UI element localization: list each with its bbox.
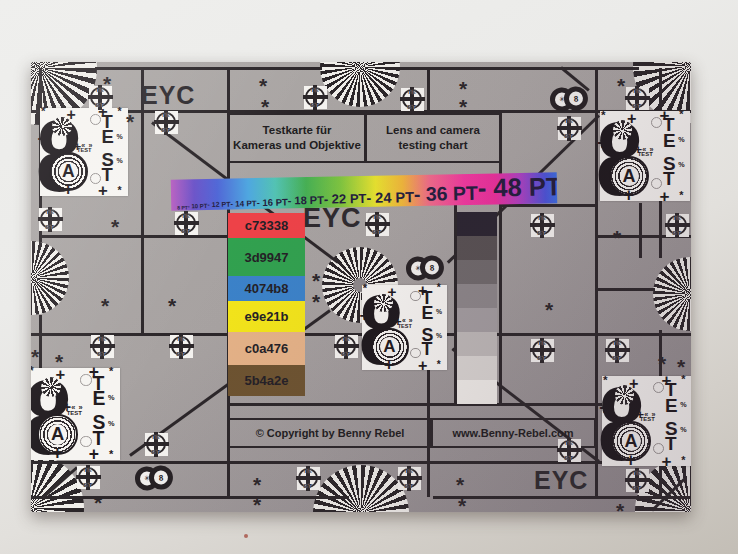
crosshair-letters-top: TE: [155, 112, 178, 118]
grayscale-step: [457, 212, 497, 236]
grid-line-horizontal: [40, 235, 228, 238]
color-swatch-5b4a2e: 5b4a2e: [228, 365, 305, 396]
patch-glyph: E: [663, 132, 676, 151]
crosshair-marker: TEST: [335, 335, 358, 358]
double-eight-marker: ✳8: [549, 86, 589, 114]
crosshair-letters-top: TE: [666, 215, 689, 221]
patch-glyph: «: [81, 142, 85, 149]
patch-glyph: +: [629, 375, 638, 391]
crosshair-letters-top: TE: [145, 434, 168, 440]
crosshair-letters-bottom: ST: [398, 483, 421, 489]
patch-glyph: %: [117, 133, 123, 140]
crosshair-letters-bottom: ST: [366, 229, 389, 235]
crosshair-marker: TEST: [175, 212, 198, 235]
color-swatch-hex-label: c73338: [245, 218, 288, 233]
pt-size-label: - 14 PT: [230, 199, 256, 210]
patch-glyph: E: [102, 128, 114, 146]
grid-line-horizontal: [596, 288, 655, 291]
patch-glyph: +: [89, 446, 99, 463]
double-eight-marker: ✳8: [134, 465, 174, 493]
crosshair-marker: TEST: [91, 335, 114, 358]
crosshair-letters-top: TE: [304, 87, 327, 93]
patch-glyph: %: [117, 157, 123, 164]
crosshair-letters-top: TE: [626, 470, 649, 476]
patch-glyph: %: [436, 333, 442, 340]
crosshair-letters-bottom: ST: [606, 355, 629, 361]
crosshair-marker: TEST: [626, 469, 649, 492]
crosshair-letters-bottom: ST: [626, 485, 649, 491]
crosshair-marker: TEST: [170, 335, 193, 358]
patch-glyph: »: [409, 318, 413, 325]
patch-glyph: E: [92, 389, 105, 408]
patch-glyph: +: [623, 186, 634, 204]
crosshair-letters-bottom: ST: [145, 449, 168, 455]
crosshair-letters-top: TE: [531, 340, 554, 346]
crosshair-marker: TEST: [558, 117, 581, 140]
patch-glyph: +: [66, 107, 75, 123]
crosshair-marker: TEST: [366, 213, 389, 236]
pt-size-label: - 48 PT: [477, 172, 557, 205]
patch-glyph: %: [108, 394, 115, 401]
crosshair-letters-top: TE: [77, 467, 100, 473]
siemens-star-fan: [31, 241, 69, 315]
grayscale-step: [457, 380, 497, 404]
crosshair-letters-top: TE: [170, 336, 193, 342]
crosshair-marker: TEST: [531, 339, 554, 362]
patch-glyph: +: [388, 284, 397, 299]
patch-glyph: %: [108, 420, 115, 427]
test-patch-8: 8A*++*++*%%*TEST+TEST+«»: [31, 368, 120, 460]
patch-glyph: +: [627, 110, 636, 126]
patch-a-letter: A: [620, 166, 639, 186]
patch-glyph: +: [63, 181, 73, 199]
crosshair-letters-top: TE: [531, 215, 554, 221]
copyright-text: © Copyright by Benny Rebel: [230, 420, 430, 446]
crosshair-marker: TEST: [558, 439, 581, 462]
patch-glyph: «: [402, 318, 406, 325]
patch-glyph: %: [678, 136, 684, 143]
test-patch-8: 8A*++*++*%%*TEST+TEST+«»: [600, 111, 690, 201]
patch-glyph: %: [680, 401, 686, 408]
crosshair-letters-top: TE: [366, 214, 389, 220]
color-swatch-e9e21b: e9e21b: [228, 301, 305, 332]
double-eight-right-circle: 8: [419, 255, 445, 281]
crosshair-letters-top: TE: [401, 89, 424, 95]
test-chart-card: Testkarte für Kameras und Objektive Lens…: [31, 62, 691, 512]
patch-glyph: +: [661, 453, 671, 470]
crosshair-letters-bottom: ST: [77, 482, 100, 488]
crosshair-letters-bottom: ST: [626, 103, 649, 109]
test-patch-8: 8A*++*++*%%*TEST+TEST+«»: [40, 108, 128, 196]
patch-glyph: *: [363, 283, 367, 294]
grayscale-step: [457, 260, 497, 284]
patch-glyph: «: [644, 411, 648, 418]
grid-line-horizontal: [398, 67, 639, 70]
grayscale-step: [457, 284, 497, 308]
color-swatch-c0a476: c0a476: [228, 332, 305, 365]
crosshair-letters-top: TE: [335, 336, 358, 342]
patch-glyph: *: [41, 106, 45, 117]
grayscale-step: [457, 356, 497, 380]
color-swatch-3d9947: 3d9947: [228, 238, 305, 276]
eyc-label-top-left: EYC: [141, 83, 195, 108]
crosshair-letters-top: TE: [175, 213, 198, 219]
patch-glyph: +: [625, 451, 636, 469]
patch-glyph: «: [642, 146, 646, 153]
crosshair-marker: TEST: [145, 433, 168, 456]
title-english-line2: testing chart: [398, 138, 467, 153]
crosshair-marker: TEST: [155, 111, 178, 134]
patch-a-letter: A: [622, 431, 641, 451]
eyc-label-bottom-right: EYC: [534, 468, 588, 493]
patch-glyph: *: [679, 109, 683, 120]
patch-glyph: *: [364, 311, 368, 320]
siemens-star-fan: [653, 257, 691, 331]
patch-glyph: »: [79, 404, 83, 411]
double-eight-right-circle: 8: [563, 86, 589, 112]
crosshair-letters-bottom: ST: [558, 133, 581, 139]
crosshair-letters-bottom: ST: [175, 228, 198, 234]
patch-glyph: *: [109, 366, 113, 377]
patch-glyph: +: [98, 183, 108, 200]
grid-line-horizontal: [31, 496, 349, 499]
grid-line-horizontal: [433, 496, 691, 499]
patch-glyph: »: [652, 411, 656, 418]
crosshair-letters-bottom: ST: [335, 351, 358, 357]
crosshair-letters-bottom: ST: [39, 224, 62, 230]
test-patch-8: 8A*++*++*%%*TEST+TEST+«»: [362, 285, 447, 370]
crosshair-letters-top: TE: [558, 118, 581, 124]
crosshair-letters-bottom: ST: [401, 104, 424, 110]
crosshair-marker: TEST: [304, 86, 327, 109]
crosshair-letters-top: TE: [297, 468, 320, 474]
grayscale-step: [457, 332, 497, 356]
crosshair-marker: TEST: [39, 208, 62, 231]
pt-size-label: - 10 PT: [188, 203, 208, 211]
patch-glyph: *: [117, 106, 121, 117]
grid-line-horizontal: [31, 461, 691, 464]
patch-glyph: %: [678, 161, 684, 168]
crosshair-letters-top: TE: [39, 209, 62, 215]
crosshair-marker: TEST: [531, 214, 554, 237]
crosshair-marker: TEST: [401, 88, 424, 111]
grid-line-horizontal: [95, 67, 322, 70]
copyright-box: © Copyright by Benny Rebel www.Benny-Reb…: [228, 418, 596, 448]
patch-glyph: *: [681, 455, 685, 466]
crosshair-letters-top: TE: [626, 88, 649, 94]
patch-glyph: «: [71, 404, 75, 411]
title-german: Testkarte für Kameras und Objektive: [228, 113, 366, 163]
color-swatch-hex-label: 4074b8: [244, 281, 288, 296]
patch-glyph: +: [418, 357, 427, 373]
crosshair-letters-bottom: ST: [304, 102, 327, 108]
crosshair-letters-top: TE: [398, 468, 421, 474]
crosshair-marker: TEST: [606, 339, 629, 362]
patch-glyph: *: [603, 374, 608, 386]
crosshair-letters-bottom: ST: [155, 127, 178, 133]
color-swatch-hex-label: 5b4a2e: [244, 373, 288, 388]
color-swatch-hex-label: 3d9947: [244, 250, 288, 265]
double-eight-right-circle: 8: [148, 465, 174, 491]
crosshair-letters-top: TE: [606, 340, 629, 346]
title-german-line2: Kameras und Objektive: [233, 138, 361, 153]
crosshair-letters-bottom: ST: [297, 483, 320, 489]
crosshair-letters-top: TE: [91, 336, 114, 342]
crosshair-letters-bottom: ST: [558, 455, 581, 461]
patch-glyph: *: [31, 396, 34, 406]
patch-glyph: %: [436, 309, 442, 316]
crosshair-letters-bottom: ST: [666, 230, 689, 236]
color-swatch-hex-label: e9e21b: [244, 309, 288, 324]
eyc-label-center: EYC: [303, 205, 362, 232]
grayscale-step: [457, 236, 497, 260]
patch-glyph: *: [117, 185, 121, 196]
patch-a-letter: A: [380, 337, 398, 356]
patch-glyph: *: [679, 190, 683, 201]
crosshair-marker: TEST: [666, 214, 689, 237]
patch-glyph: *: [437, 283, 441, 293]
photo-background: Testkarte für Kameras und Objektive Lens…: [0, 0, 738, 554]
color-swatch-c73338: c73338: [228, 213, 305, 238]
crosshair-letters-bottom: ST: [89, 102, 112, 108]
siemens-star-fan: [313, 465, 409, 512]
color-swatch-hex-label: c0a476: [245, 341, 288, 356]
grayscale-step: [457, 308, 497, 332]
pt-size-label: - 12 PT: [207, 201, 230, 210]
grid-line-vertical: [427, 68, 430, 111]
crosshair-marker: TEST: [297, 467, 320, 490]
double-eight-marker: ✳8: [405, 255, 445, 283]
patch-glyph: *: [109, 449, 113, 460]
patch-glyph: »: [650, 146, 654, 153]
patch-glyph: *: [437, 360, 441, 370]
patch-glyph: »: [88, 142, 92, 149]
patch-glyph: +: [659, 188, 669, 205]
dust-speck: [244, 534, 248, 538]
pt-size-label: - 36 PT: [414, 180, 478, 206]
patch-glyph: +: [384, 356, 394, 373]
test-patch-8: 8A*++*++*%%*TEST+TEST+«»: [602, 376, 691, 466]
crosshair-marker: TEST: [398, 467, 421, 490]
crosshair-letters-bottom: ST: [531, 230, 554, 236]
patch-glyph: E: [422, 305, 434, 323]
patch-glyph: *: [604, 403, 608, 413]
crosshair-marker: TEST: [626, 87, 649, 110]
patch-glyph: *: [602, 138, 606, 148]
crosshair-letters-bottom: ST: [531, 355, 554, 361]
siemens-star-fan: [320, 62, 400, 107]
patch-glyph: *: [601, 109, 606, 121]
grayscale-step-wedge: [457, 212, 497, 404]
color-swatch-4074b8: 4074b8: [228, 276, 305, 301]
crosshair-marker: TEST: [77, 466, 100, 489]
crosshair-letters-bottom: ST: [170, 351, 193, 357]
patch-glyph: +: [52, 444, 63, 462]
pt-size-label: - 16 PT: [257, 197, 288, 209]
title-german-line1: Testkarte für: [263, 123, 332, 138]
patch-glyph: %: [680, 426, 686, 433]
title-english: Lens and camera testing chart: [365, 113, 501, 163]
crosshair-letters-bottom: ST: [91, 351, 114, 357]
patch-glyph: E: [665, 397, 678, 416]
title-english-line1: Lens and camera: [386, 123, 480, 138]
crosshair-letters-top: TE: [558, 440, 581, 446]
pt-size-label: - 24 PT: [366, 188, 414, 207]
patch-glyph: *: [42, 134, 46, 144]
